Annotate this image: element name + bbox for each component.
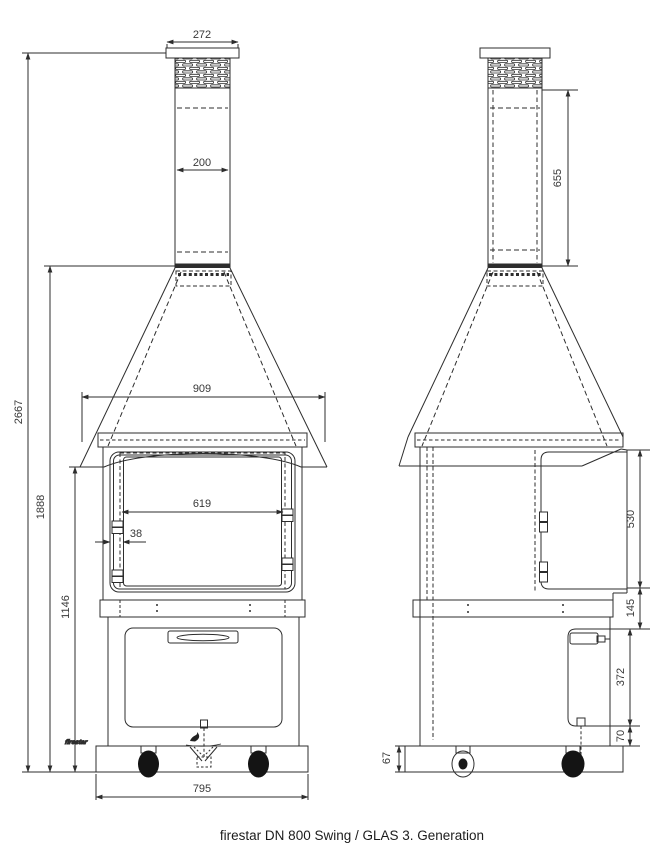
dim-530-label: 530	[625, 510, 637, 528]
cabinet-handle-side	[570, 633, 598, 644]
side-view	[399, 48, 627, 778]
spark-arrestor-mesh-side	[488, 58, 542, 88]
damper-hidden	[176, 271, 231, 286]
damper-hidden-side	[487, 271, 543, 286]
dim-272-label: 272	[193, 29, 211, 41]
hood-side	[399, 268, 627, 466]
glass-door-side-profile	[535, 450, 627, 592]
side-panel	[420, 447, 627, 746]
cabinet-door	[125, 628, 282, 757]
dim-1146-label: 1146	[60, 595, 72, 619]
shelf-screws-side	[467, 604, 564, 613]
flue-side	[488, 88, 542, 268]
chimney-cap-side	[480, 48, 550, 58]
base-frame	[96, 746, 308, 772]
firebox-top-band-side	[415, 433, 623, 447]
firestar-logo-text: firestar	[64, 739, 88, 746]
dim-70-label: 70	[615, 730, 627, 742]
dim-655-label: 655	[552, 169, 564, 187]
front-view: firestar	[64, 42, 327, 778]
castor-wheels-side	[452, 746, 585, 778]
base-frame-side	[405, 746, 623, 772]
dim-909-label: 909	[193, 383, 211, 395]
firebox-body	[103, 447, 302, 600]
dim-145-label: 145	[625, 599, 637, 617]
shelf-screws	[156, 604, 251, 612]
dimension-lines	[22, 53, 650, 800]
glass-door	[110, 452, 295, 592]
fireplace-drawing: firestar	[0, 0, 653, 853]
hood	[80, 268, 327, 467]
dim-2667-label: 2667	[13, 400, 25, 424]
dim-619-label: 619	[193, 498, 211, 510]
firestar-logo: firestar	[64, 732, 221, 746]
shelf-band-side	[413, 600, 613, 617]
shelf-band	[100, 600, 305, 617]
dim-372-label: 372	[615, 668, 627, 686]
firebox-top-band	[98, 433, 307, 447]
flue	[175, 88, 230, 268]
drawing-title: firestar DN 800 Swing / GLAS 3. Generati…	[220, 828, 484, 843]
dim-67-label: 67	[381, 752, 393, 764]
dim-795-label: 795	[193, 783, 211, 795]
dim-38-label: 38	[130, 528, 142, 540]
door-latch-side	[577, 718, 585, 726]
cabinet-handle-slot	[177, 634, 229, 640]
door-hinges	[112, 509, 293, 583]
spark-arrestor-mesh	[175, 58, 230, 88]
technical-drawing-page: firestar	[0, 0, 653, 853]
dim-200-label: 200	[193, 157, 211, 169]
chimney-cap	[166, 42, 239, 58]
dim-1888-label: 1888	[35, 495, 47, 519]
